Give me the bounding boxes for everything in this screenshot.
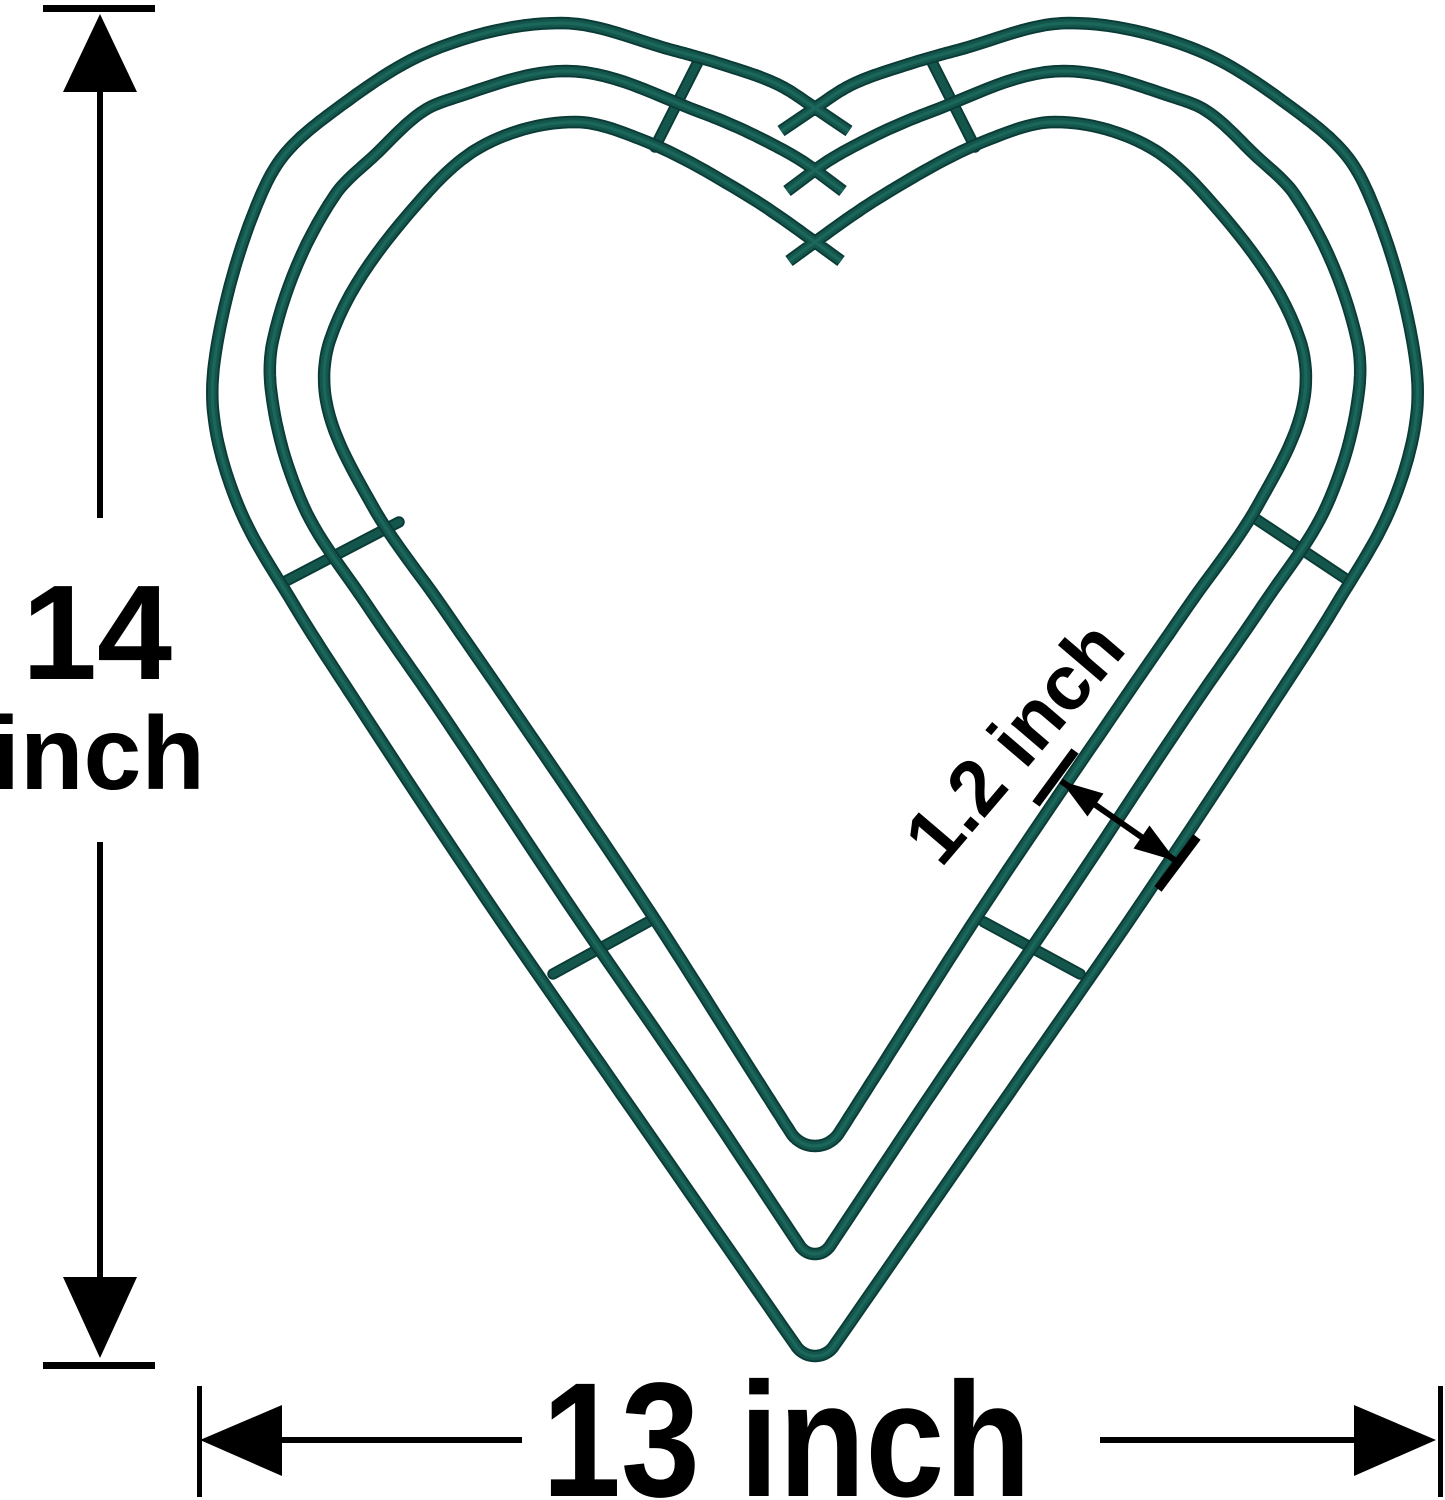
svg-text:inch: inch <box>0 696 205 812</box>
svg-text:14: 14 <box>22 557 172 708</box>
svg-text:13 inch: 13 inch <box>542 1348 1031 1500</box>
